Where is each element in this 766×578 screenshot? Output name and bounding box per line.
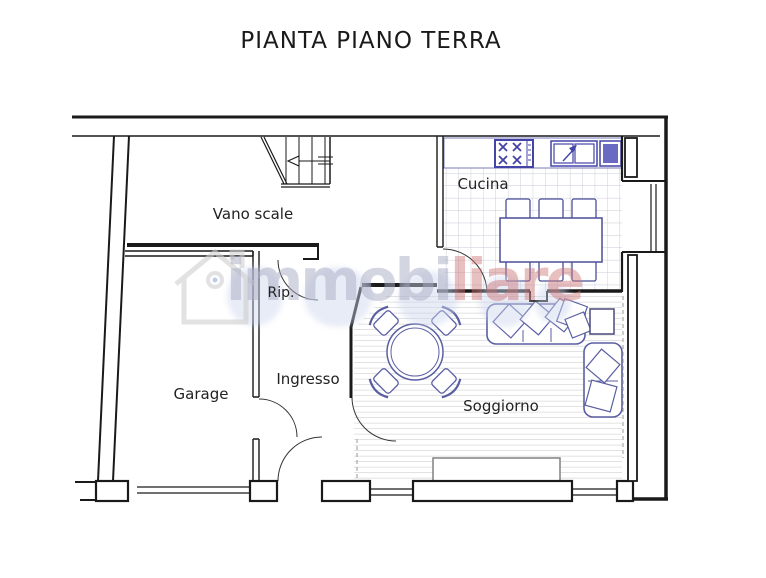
stairs [261, 137, 333, 187]
bottom-window-2 [572, 487, 617, 497]
room-label-cucina: Cucina [457, 175, 508, 193]
rug [433, 458, 560, 481]
room-label-ingresso: Ingresso [276, 370, 339, 388]
front-door-arc [278, 437, 322, 481]
floor-plan-page: immobiliare PIANTA PIANO TERRA Vano scal… [0, 0, 766, 578]
page-title: PIANTA PIANO TERRA [240, 28, 501, 54]
right-window-long [628, 255, 637, 481]
room-label-vano-scale: Vano scale [213, 205, 293, 223]
dishwasher-icon [600, 141, 621, 166]
room-label-garage: Garage [174, 385, 229, 403]
bottom-window-1 [370, 487, 413, 497]
sofa-three-seat [487, 298, 591, 344]
garage-door-arc [259, 399, 297, 437]
right-window-top [625, 138, 637, 177]
dining-table-and-chairs [500, 199, 602, 281]
sofa-two-seat [584, 343, 622, 417]
room-label-rip: Rip. [268, 285, 295, 301]
floor-plan-drawing [0, 0, 766, 578]
side-table [590, 309, 614, 334]
bottom-wall-piers [250, 481, 633, 501]
french-window [651, 184, 656, 251]
room-label-soggiorno: Soggiorno [463, 397, 539, 415]
garage-door-symbol [137, 487, 250, 493]
